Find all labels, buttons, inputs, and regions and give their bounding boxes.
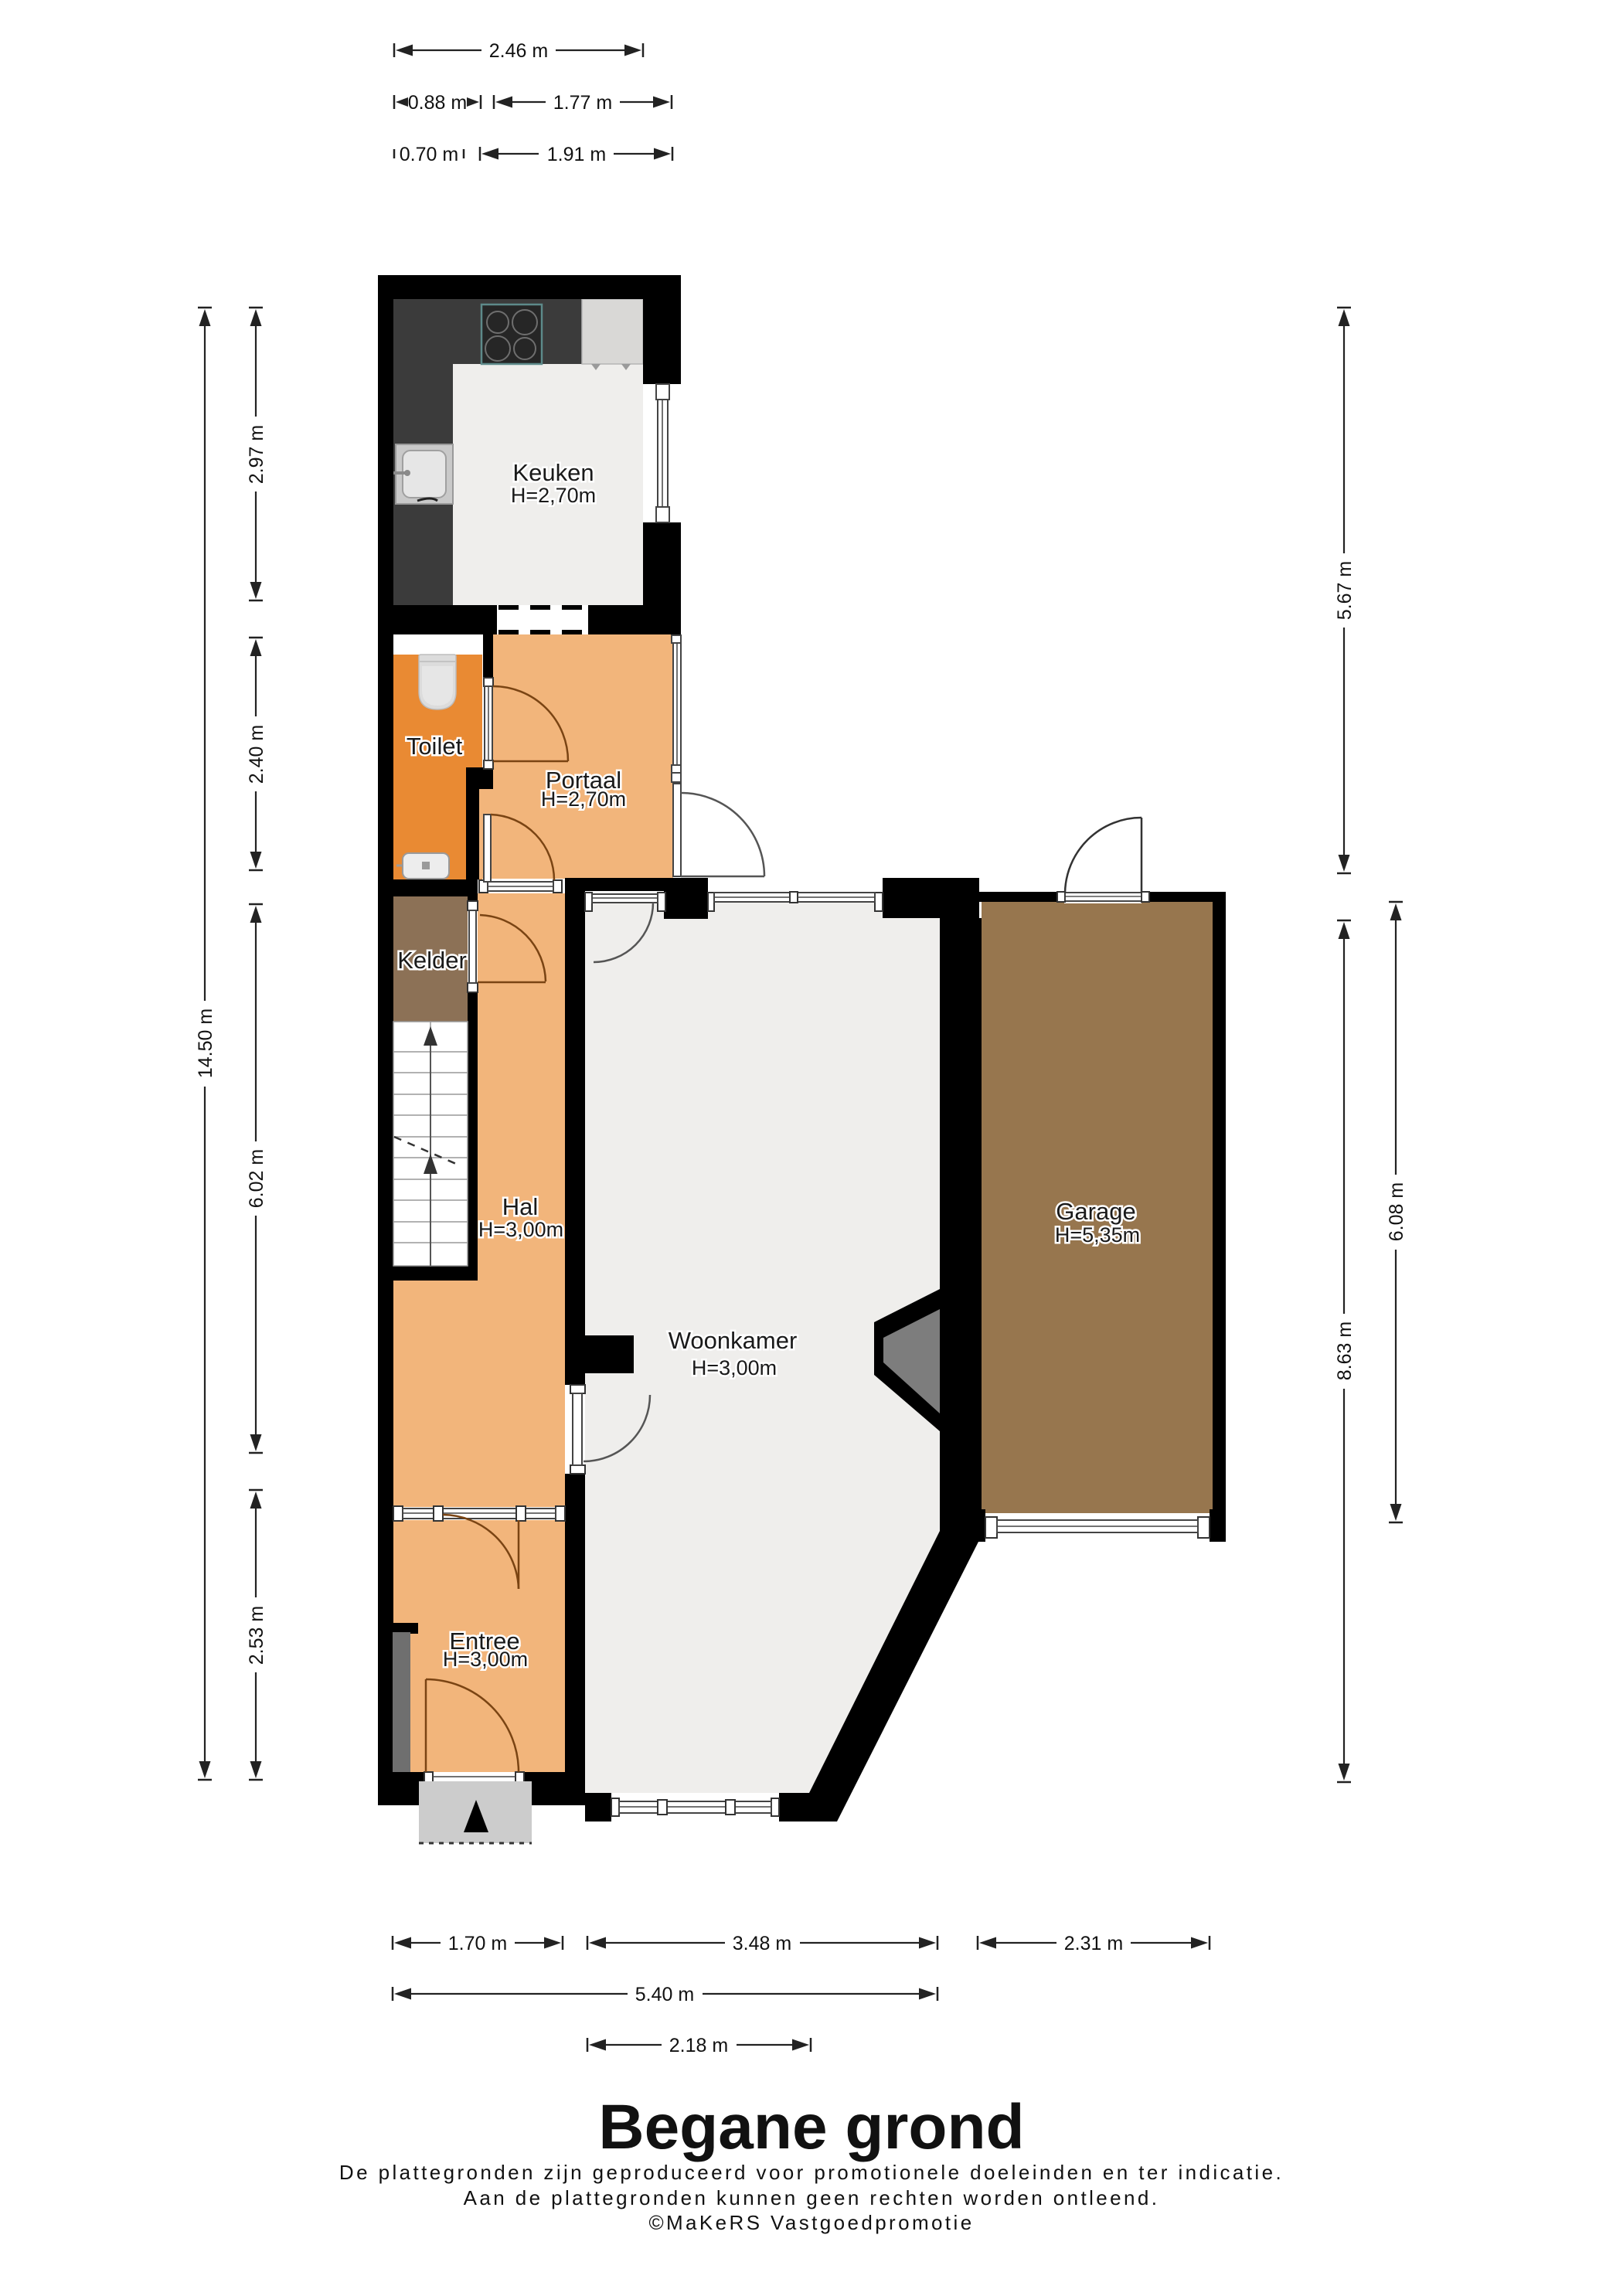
svg-text:Garage: Garage	[1056, 1198, 1135, 1225]
svg-text:0.70 m: 0.70 m	[400, 144, 458, 165]
svg-text:Keuken: Keuken	[512, 459, 594, 486]
svg-text:6.08 m: 6.08 m	[1386, 1182, 1407, 1241]
svg-text:2.31 m: 2.31 m	[1064, 1933, 1123, 1954]
svg-text:Kelder: Kelder	[397, 947, 467, 974]
svg-text:2.97 m: 2.97 m	[246, 425, 267, 484]
svg-text:2.40 m: 2.40 m	[246, 725, 267, 784]
svg-text:14.50 m: 14.50 m	[195, 1009, 216, 1078]
svg-text:2.46 m: 2.46 m	[489, 40, 548, 62]
svg-text:2.18 m: 2.18 m	[669, 2035, 728, 2056]
svg-text:5.40 m: 5.40 m	[635, 1984, 694, 2005]
svg-text:6.02 m: 6.02 m	[246, 1149, 267, 1208]
svg-text:1.91 m: 1.91 m	[547, 144, 606, 165]
svg-text:Hal: Hal	[502, 1193, 539, 1220]
svg-text:Aan de plattegronden kunnen ge: Aan de plattegronden kunnen geen rechten…	[464, 2186, 1160, 2209]
svg-text:8.63 m: 8.63 m	[1334, 1321, 1356, 1380]
svg-text:H=5,35m: H=5,35m	[1055, 1223, 1140, 1247]
svg-text:De plattegronden zijn geproduc: De plattegronden zijn geproduceerd voor …	[339, 2161, 1284, 2184]
svg-text:1.70 m: 1.70 m	[448, 1933, 507, 1954]
svg-text:0.88 m: 0.88 m	[408, 92, 467, 114]
svg-text:©MaKeRS Vastgoedpromotie: ©MaKeRS Vastgoedpromotie	[648, 2211, 974, 2234]
svg-text:Begane grond: Begane grond	[598, 2092, 1024, 2162]
svg-text:H=3,00m: H=3,00m	[443, 1648, 528, 1671]
svg-text:H=3,00m: H=3,00m	[478, 1218, 563, 1241]
svg-text:2.53 m: 2.53 m	[246, 1606, 267, 1665]
svg-text:1.77 m: 1.77 m	[553, 92, 612, 114]
svg-text:Woonkamer: Woonkamer	[669, 1327, 798, 1354]
svg-text:H=2,70m: H=2,70m	[541, 787, 626, 811]
svg-text:H=3,00m: H=3,00m	[692, 1356, 777, 1379]
svg-text:5.67 m: 5.67 m	[1334, 561, 1356, 620]
svg-text:3.48 m: 3.48 m	[733, 1933, 791, 1954]
svg-text:Toilet: Toilet	[407, 733, 463, 760]
svg-text:H=2,70m: H=2,70m	[511, 484, 596, 507]
